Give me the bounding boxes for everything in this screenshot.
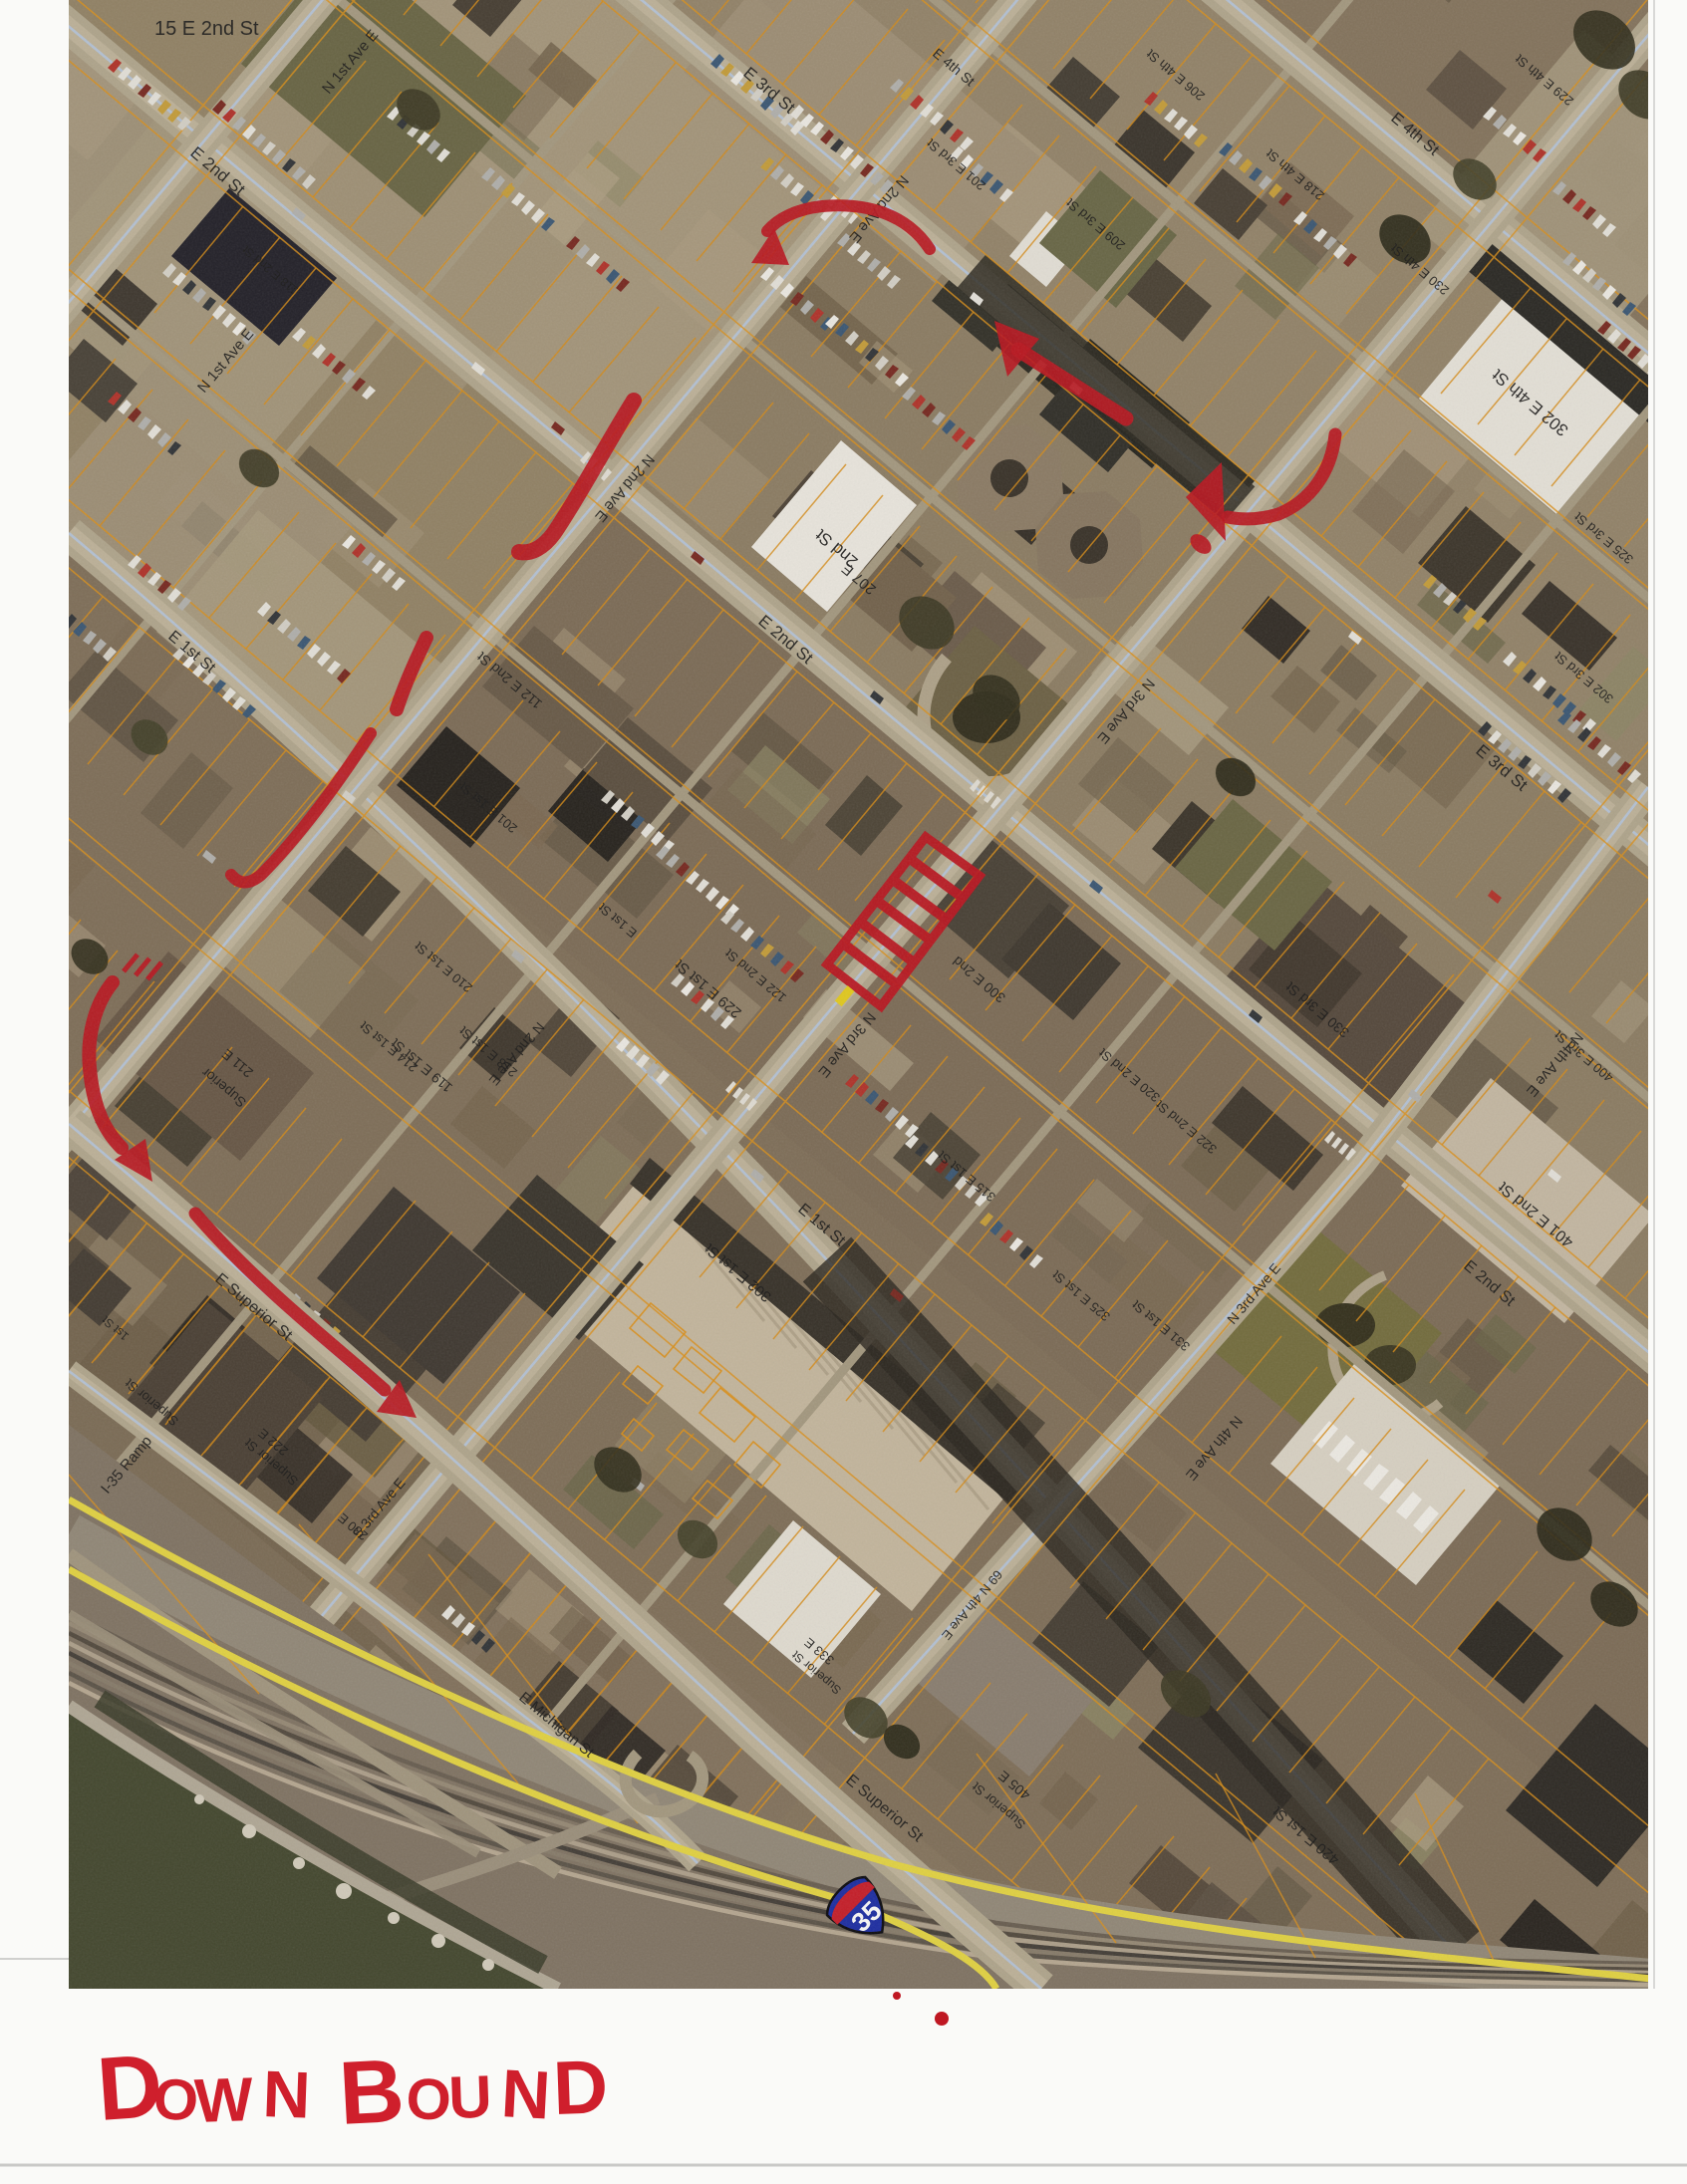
svg-text:O: O [406, 2066, 452, 2133]
svg-text:U: U [447, 2063, 493, 2131]
svg-text:B: B [337, 2042, 407, 2144]
svg-text:N: N [499, 2055, 552, 2133]
svg-text:N: N [262, 2056, 312, 2132]
svg-text:W: W [193, 2065, 254, 2136]
svg-text:D: D [552, 2045, 610, 2131]
